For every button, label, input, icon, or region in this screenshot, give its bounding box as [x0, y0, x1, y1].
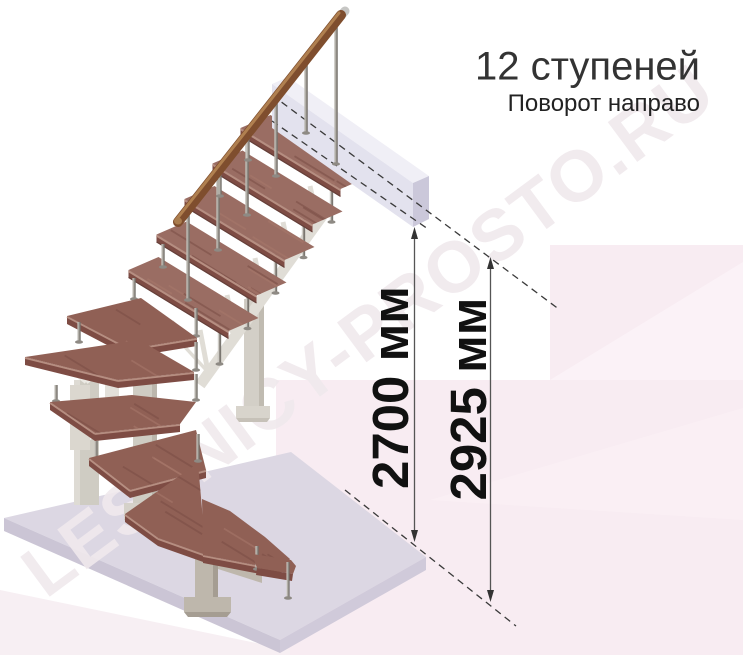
svg-text:Поворот направо: Поворот направо [508, 90, 700, 117]
svg-text:2700 мм: 2700 мм [362, 286, 419, 489]
svg-text:12 ступеней: 12 ступеней [475, 45, 700, 89]
svg-text:2925 мм: 2925 мм [440, 297, 497, 500]
